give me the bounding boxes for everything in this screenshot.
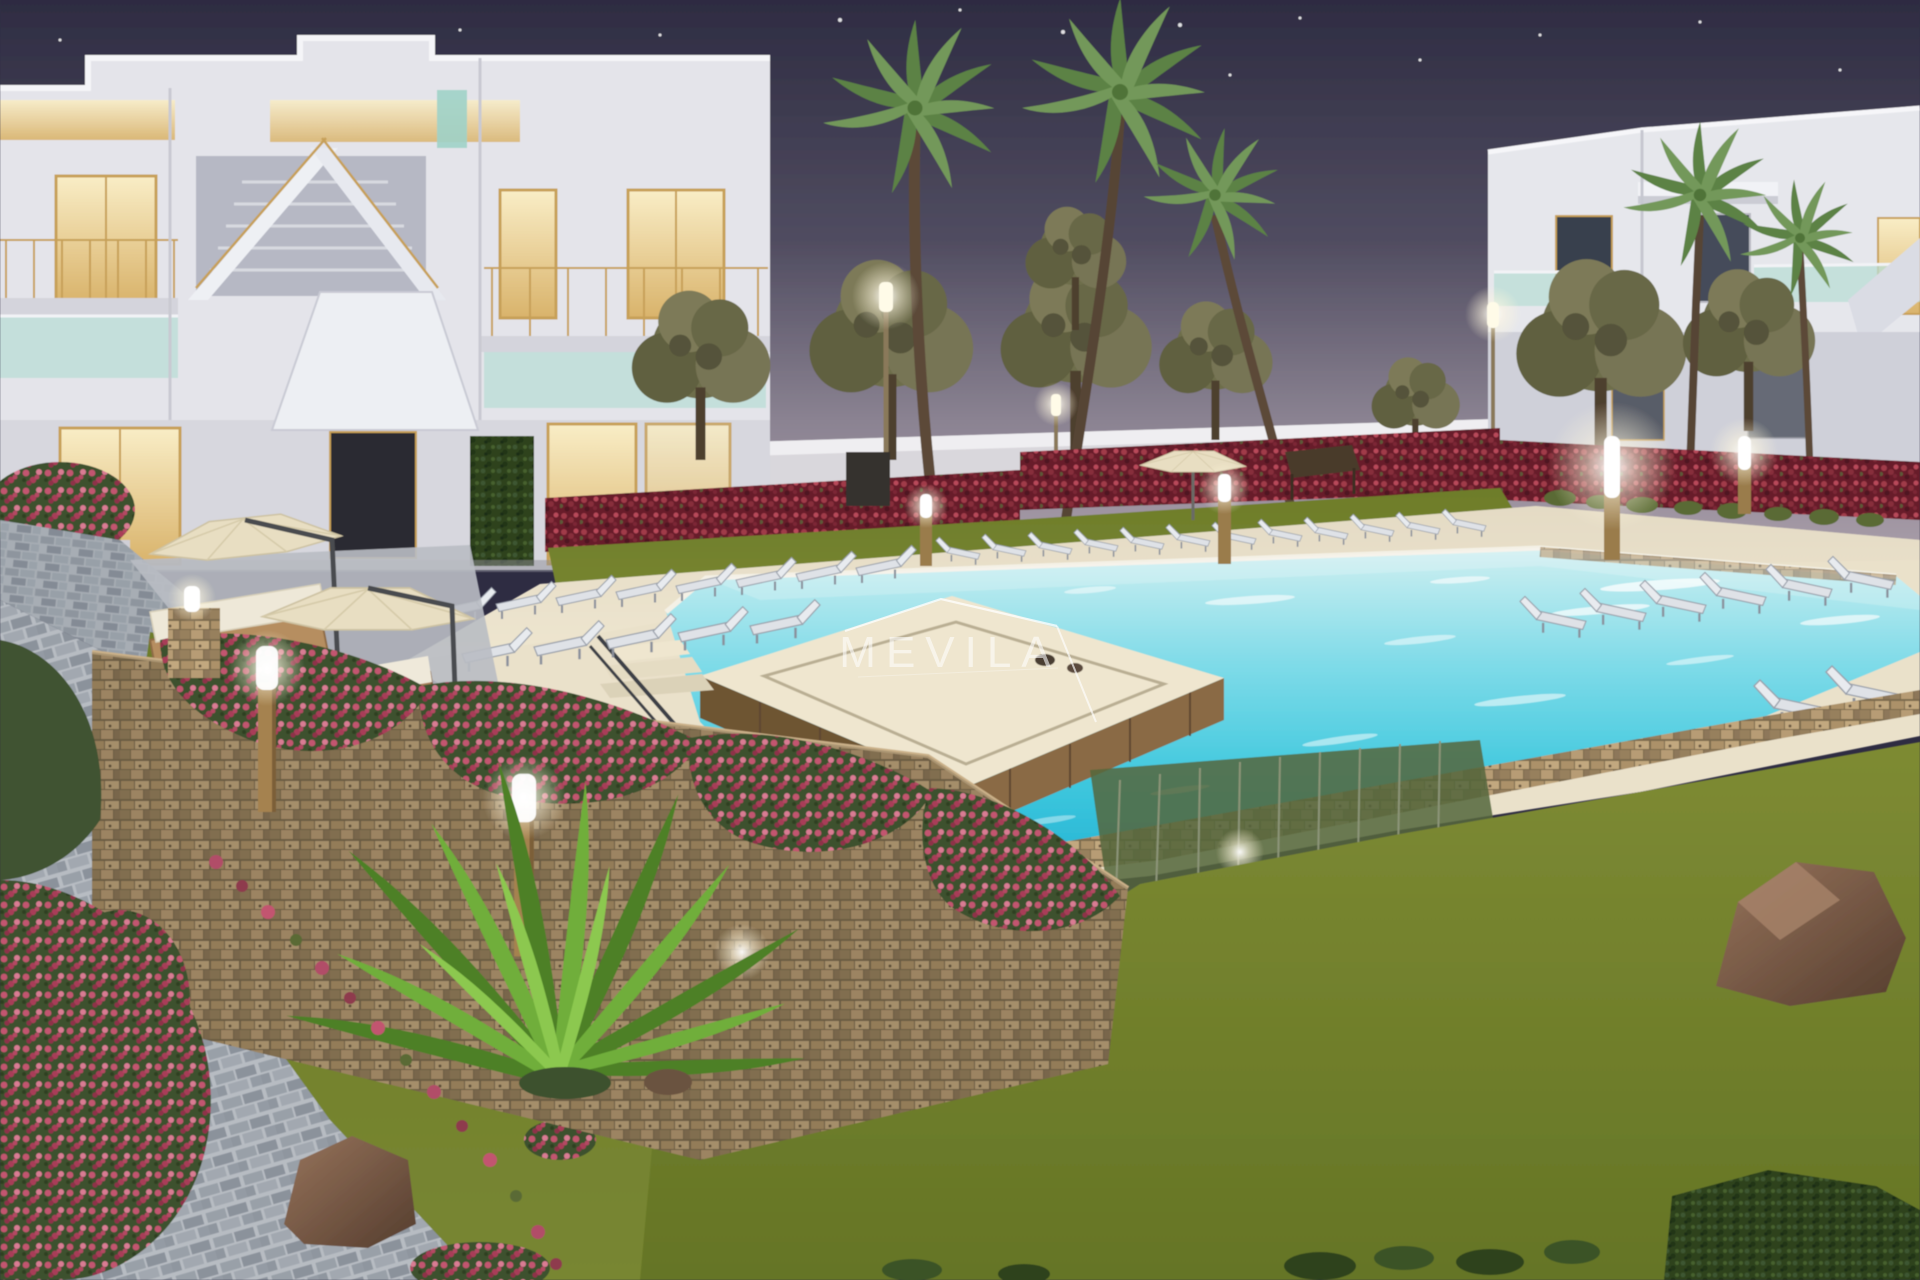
rock	[644, 1069, 692, 1095]
watermark-text: MEVILA	[839, 628, 1060, 677]
entrance-door	[330, 432, 416, 558]
lit-roof-soffit	[270, 100, 520, 142]
rendered-photo: MEVILA	[0, 0, 1920, 1280]
vertical-garden-pillar	[470, 436, 534, 566]
teal-accent	[437, 90, 467, 148]
lit-window	[500, 190, 556, 318]
glass-balustrade	[0, 316, 178, 378]
bbq-grill	[846, 452, 890, 506]
scene-canvas: MEVILA	[0, 0, 1920, 1280]
balcony-slab	[0, 298, 178, 316]
lit-roof-soffit	[0, 100, 175, 140]
